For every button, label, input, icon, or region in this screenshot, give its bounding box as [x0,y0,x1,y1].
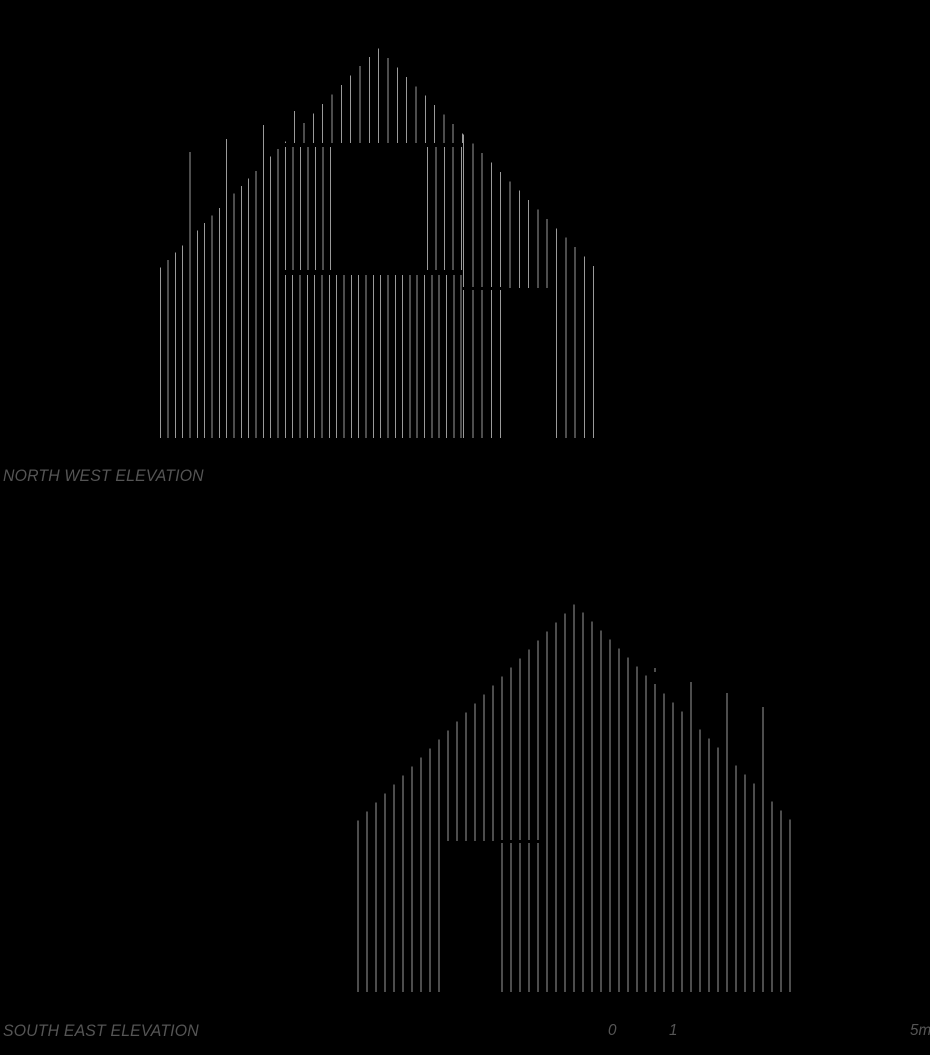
scale-label-1: 1 [669,1022,677,1040]
elevation-drawing [0,0,930,1055]
north-west-elevation-lines [161,49,594,438]
drawing-sheet: { "page": { "width": 930, "height": 1055… [0,0,930,1055]
south-east-elevation-lines [358,605,790,992]
north-west-elevation-label: NORTH WEST ELEVATION [3,466,204,486]
south-east-elevation-label: SOUTH EAST ELEVATION [3,1021,199,1041]
scale-label-0: 0 [608,1022,616,1040]
scale-label-5m: 5m [910,1022,930,1040]
